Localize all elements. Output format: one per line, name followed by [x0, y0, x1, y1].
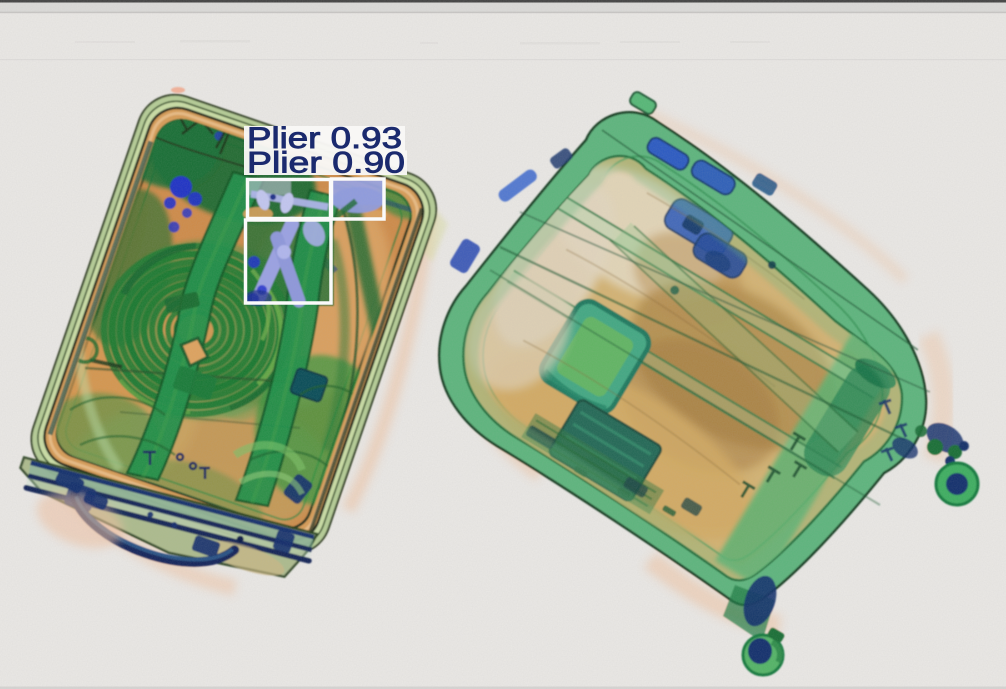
svg-text:Plier 0.90: Plier 0.90 — [247, 147, 405, 180]
